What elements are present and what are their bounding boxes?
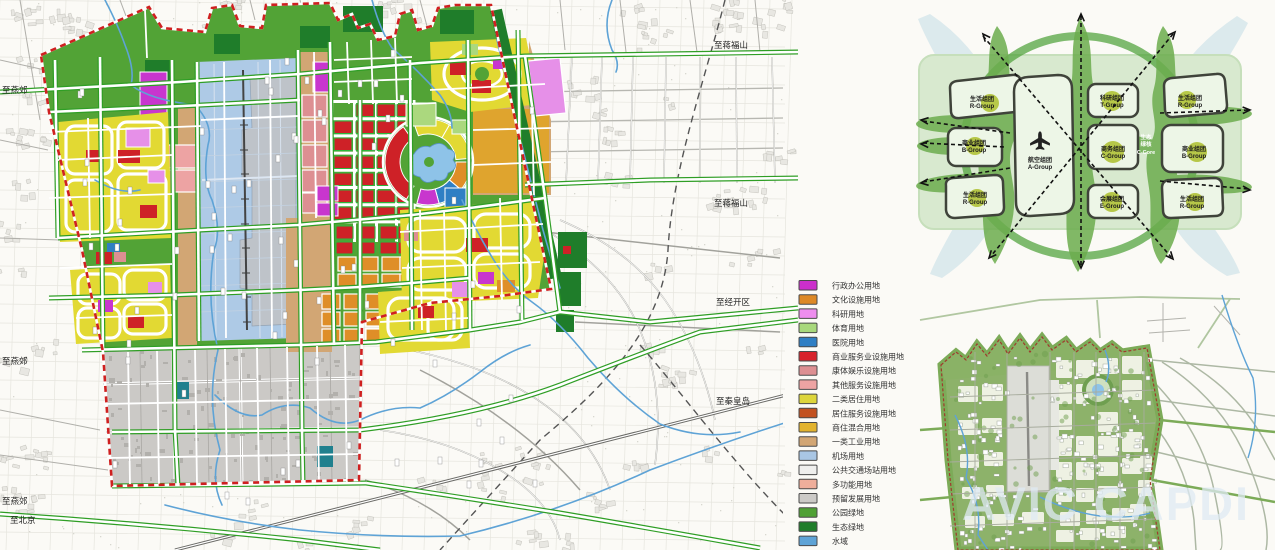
- svg-text:其他服务设施用地: 其他服务设施用地: [832, 380, 896, 390]
- svg-text:居住服务设施用地: 居住服务设施用地: [832, 408, 896, 418]
- svg-text:文化设施用地: 文化设施用地: [832, 295, 880, 305]
- svg-text:二类居住用地: 二类居住用地: [832, 394, 880, 404]
- svg-text:生态: 生态: [1140, 133, 1152, 141]
- svg-text:商住混合用地: 商住混合用地: [832, 423, 880, 433]
- svg-text:会展组团: 会展组团: [1100, 195, 1124, 203]
- svg-text:至燕郊: 至燕郊: [2, 496, 28, 506]
- svg-text:至经开区: 至经开区: [716, 297, 751, 307]
- svg-text:B-Group: B-Group: [962, 148, 987, 154]
- svg-text:预留发展用地: 预留发展用地: [832, 494, 880, 504]
- svg-text:生态绿地: 生态绿地: [832, 522, 864, 532]
- svg-text:生活组团: 生活组团: [970, 95, 994, 103]
- svg-text:商务组团: 商务组团: [1101, 145, 1125, 153]
- svg-text:科研组团: 科研组团: [1100, 94, 1124, 102]
- svg-text:公共交通场站用地: 公共交通场站用地: [832, 465, 896, 475]
- svg-text:体育用地: 体育用地: [832, 323, 864, 333]
- svg-text:R-Group: R-Group: [1178, 103, 1203, 109]
- svg-text:康体娱乐设施用地: 康体娱乐设施用地: [832, 366, 896, 376]
- svg-text:科研用地: 科研用地: [832, 309, 864, 319]
- svg-text:商业组团: 商业组团: [1182, 145, 1206, 153]
- svg-text:水域: 水域: [832, 536, 848, 546]
- svg-text:至蒋福山: 至蒋福山: [714, 40, 748, 50]
- svg-text:绿核: 绿核: [1140, 140, 1152, 148]
- svg-text:T-Group: T-Group: [1100, 103, 1124, 109]
- svg-text:AVIC CAPDI: AVIC CAPDI: [962, 477, 1250, 530]
- svg-text:至秦皇岛: 至秦皇岛: [716, 396, 750, 406]
- svg-text:医院用地: 医院用地: [832, 337, 864, 347]
- svg-text:C-Group: C-Group: [1101, 154, 1126, 160]
- svg-text:一类工业用地: 一类工业用地: [832, 437, 880, 447]
- svg-text:R-Group: R-Group: [963, 200, 988, 206]
- svg-text:A-Group: A-Group: [1028, 165, 1053, 171]
- svg-text:机场用地: 机场用地: [832, 451, 864, 461]
- svg-text:E-Group: E-Group: [1100, 204, 1124, 210]
- svg-text:B-Group: B-Group: [1182, 154, 1207, 160]
- svg-text:生活组团: 生活组团: [1178, 94, 1202, 102]
- svg-text:公园绿地: 公园绿地: [832, 508, 864, 518]
- svg-text:行政办公用地: 行政办公用地: [832, 281, 880, 291]
- svg-text:R-Group: R-Group: [1180, 204, 1205, 210]
- svg-text:R-Group: R-Group: [970, 104, 995, 110]
- svg-text:至北京: 至北京: [10, 515, 36, 525]
- svg-text:商业服务业设施用地: 商业服务业设施用地: [832, 352, 904, 362]
- svg-text:至蒋福山: 至蒋福山: [714, 198, 748, 208]
- svg-text:至燕郊: 至燕郊: [2, 356, 28, 366]
- svg-text:至燕郊: 至燕郊: [2, 85, 28, 95]
- svg-text:C-Core: C-Core: [1137, 150, 1155, 156]
- svg-text:多功能用地: 多功能用地: [832, 479, 872, 489]
- svg-text:生活组团: 生活组团: [963, 191, 987, 199]
- svg-text:生活组团: 生活组团: [1180, 195, 1204, 203]
- svg-text:航空组团: 航空组团: [1028, 156, 1052, 164]
